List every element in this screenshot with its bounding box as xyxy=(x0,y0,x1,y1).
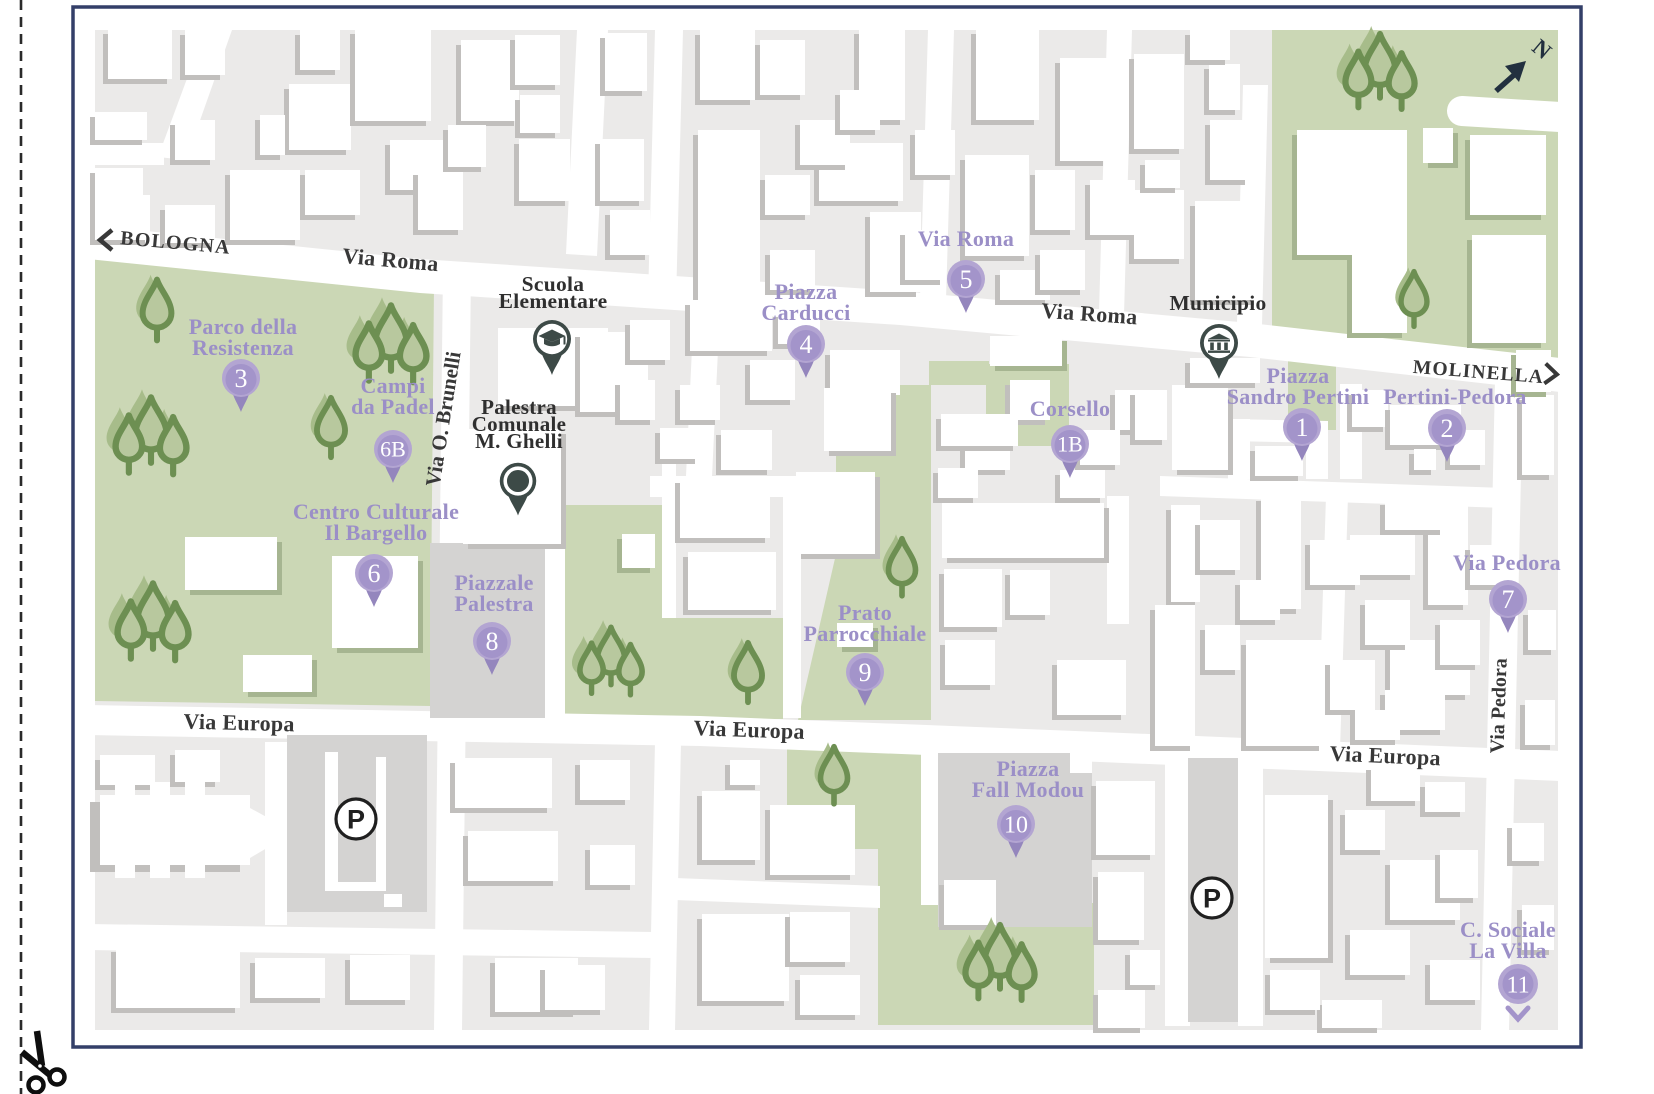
svg-text:da Padel: da Padel xyxy=(351,394,435,419)
svg-text:6: 6 xyxy=(368,559,381,588)
svg-text:5: 5 xyxy=(960,265,973,294)
svg-text:Via Europa: Via Europa xyxy=(183,709,295,737)
svg-text:Palestra: Palestra xyxy=(454,591,533,616)
svg-text:Resistenza: Resistenza xyxy=(192,335,294,360)
svg-text:Via Pedora: Via Pedora xyxy=(1453,550,1561,575)
svg-text:10: 10 xyxy=(1004,812,1028,838)
svg-text:Via Pedora: Via Pedora xyxy=(1486,658,1511,754)
svg-text:1: 1 xyxy=(1296,413,1309,442)
svg-text:8: 8 xyxy=(486,627,499,656)
svg-text:Il Bargello: Il Bargello xyxy=(325,520,428,545)
svg-text:Sandro Pertini: Sandro Pertini xyxy=(1227,384,1370,409)
svg-text:Parrocchiale: Parrocchiale xyxy=(804,621,927,646)
svg-text:M. Ghelli: M. Ghelli xyxy=(475,429,563,453)
svg-text:Corsello: Corsello xyxy=(1030,396,1111,421)
svg-text:Carducci: Carducci xyxy=(761,300,850,325)
svg-text:Municipio: Municipio xyxy=(1169,291,1266,315)
svg-text:1B: 1B xyxy=(1057,432,1083,457)
svg-text:4: 4 xyxy=(800,330,813,359)
svg-text:11: 11 xyxy=(1506,973,1529,999)
svg-text:9: 9 xyxy=(859,658,872,687)
svg-text:6B: 6B xyxy=(380,437,406,462)
svg-text:Via Europa: Via Europa xyxy=(1329,741,1441,771)
svg-text:7: 7 xyxy=(1502,585,1515,614)
svg-text:P: P xyxy=(1203,884,1221,914)
svg-text:Pertini-Pedora: Pertini-Pedora xyxy=(1383,384,1526,409)
svg-text:La Villa: La Villa xyxy=(1469,938,1547,963)
svg-text:Via Europa: Via Europa xyxy=(693,715,805,744)
svg-text:Elementare: Elementare xyxy=(499,289,608,313)
svg-text:Fall Modou: Fall Modou xyxy=(972,777,1084,802)
svg-text:P: P xyxy=(347,805,365,835)
svg-text:2: 2 xyxy=(1441,414,1454,443)
svg-text:Via Roma: Via Roma xyxy=(918,226,1014,251)
svg-text:3: 3 xyxy=(235,364,248,393)
